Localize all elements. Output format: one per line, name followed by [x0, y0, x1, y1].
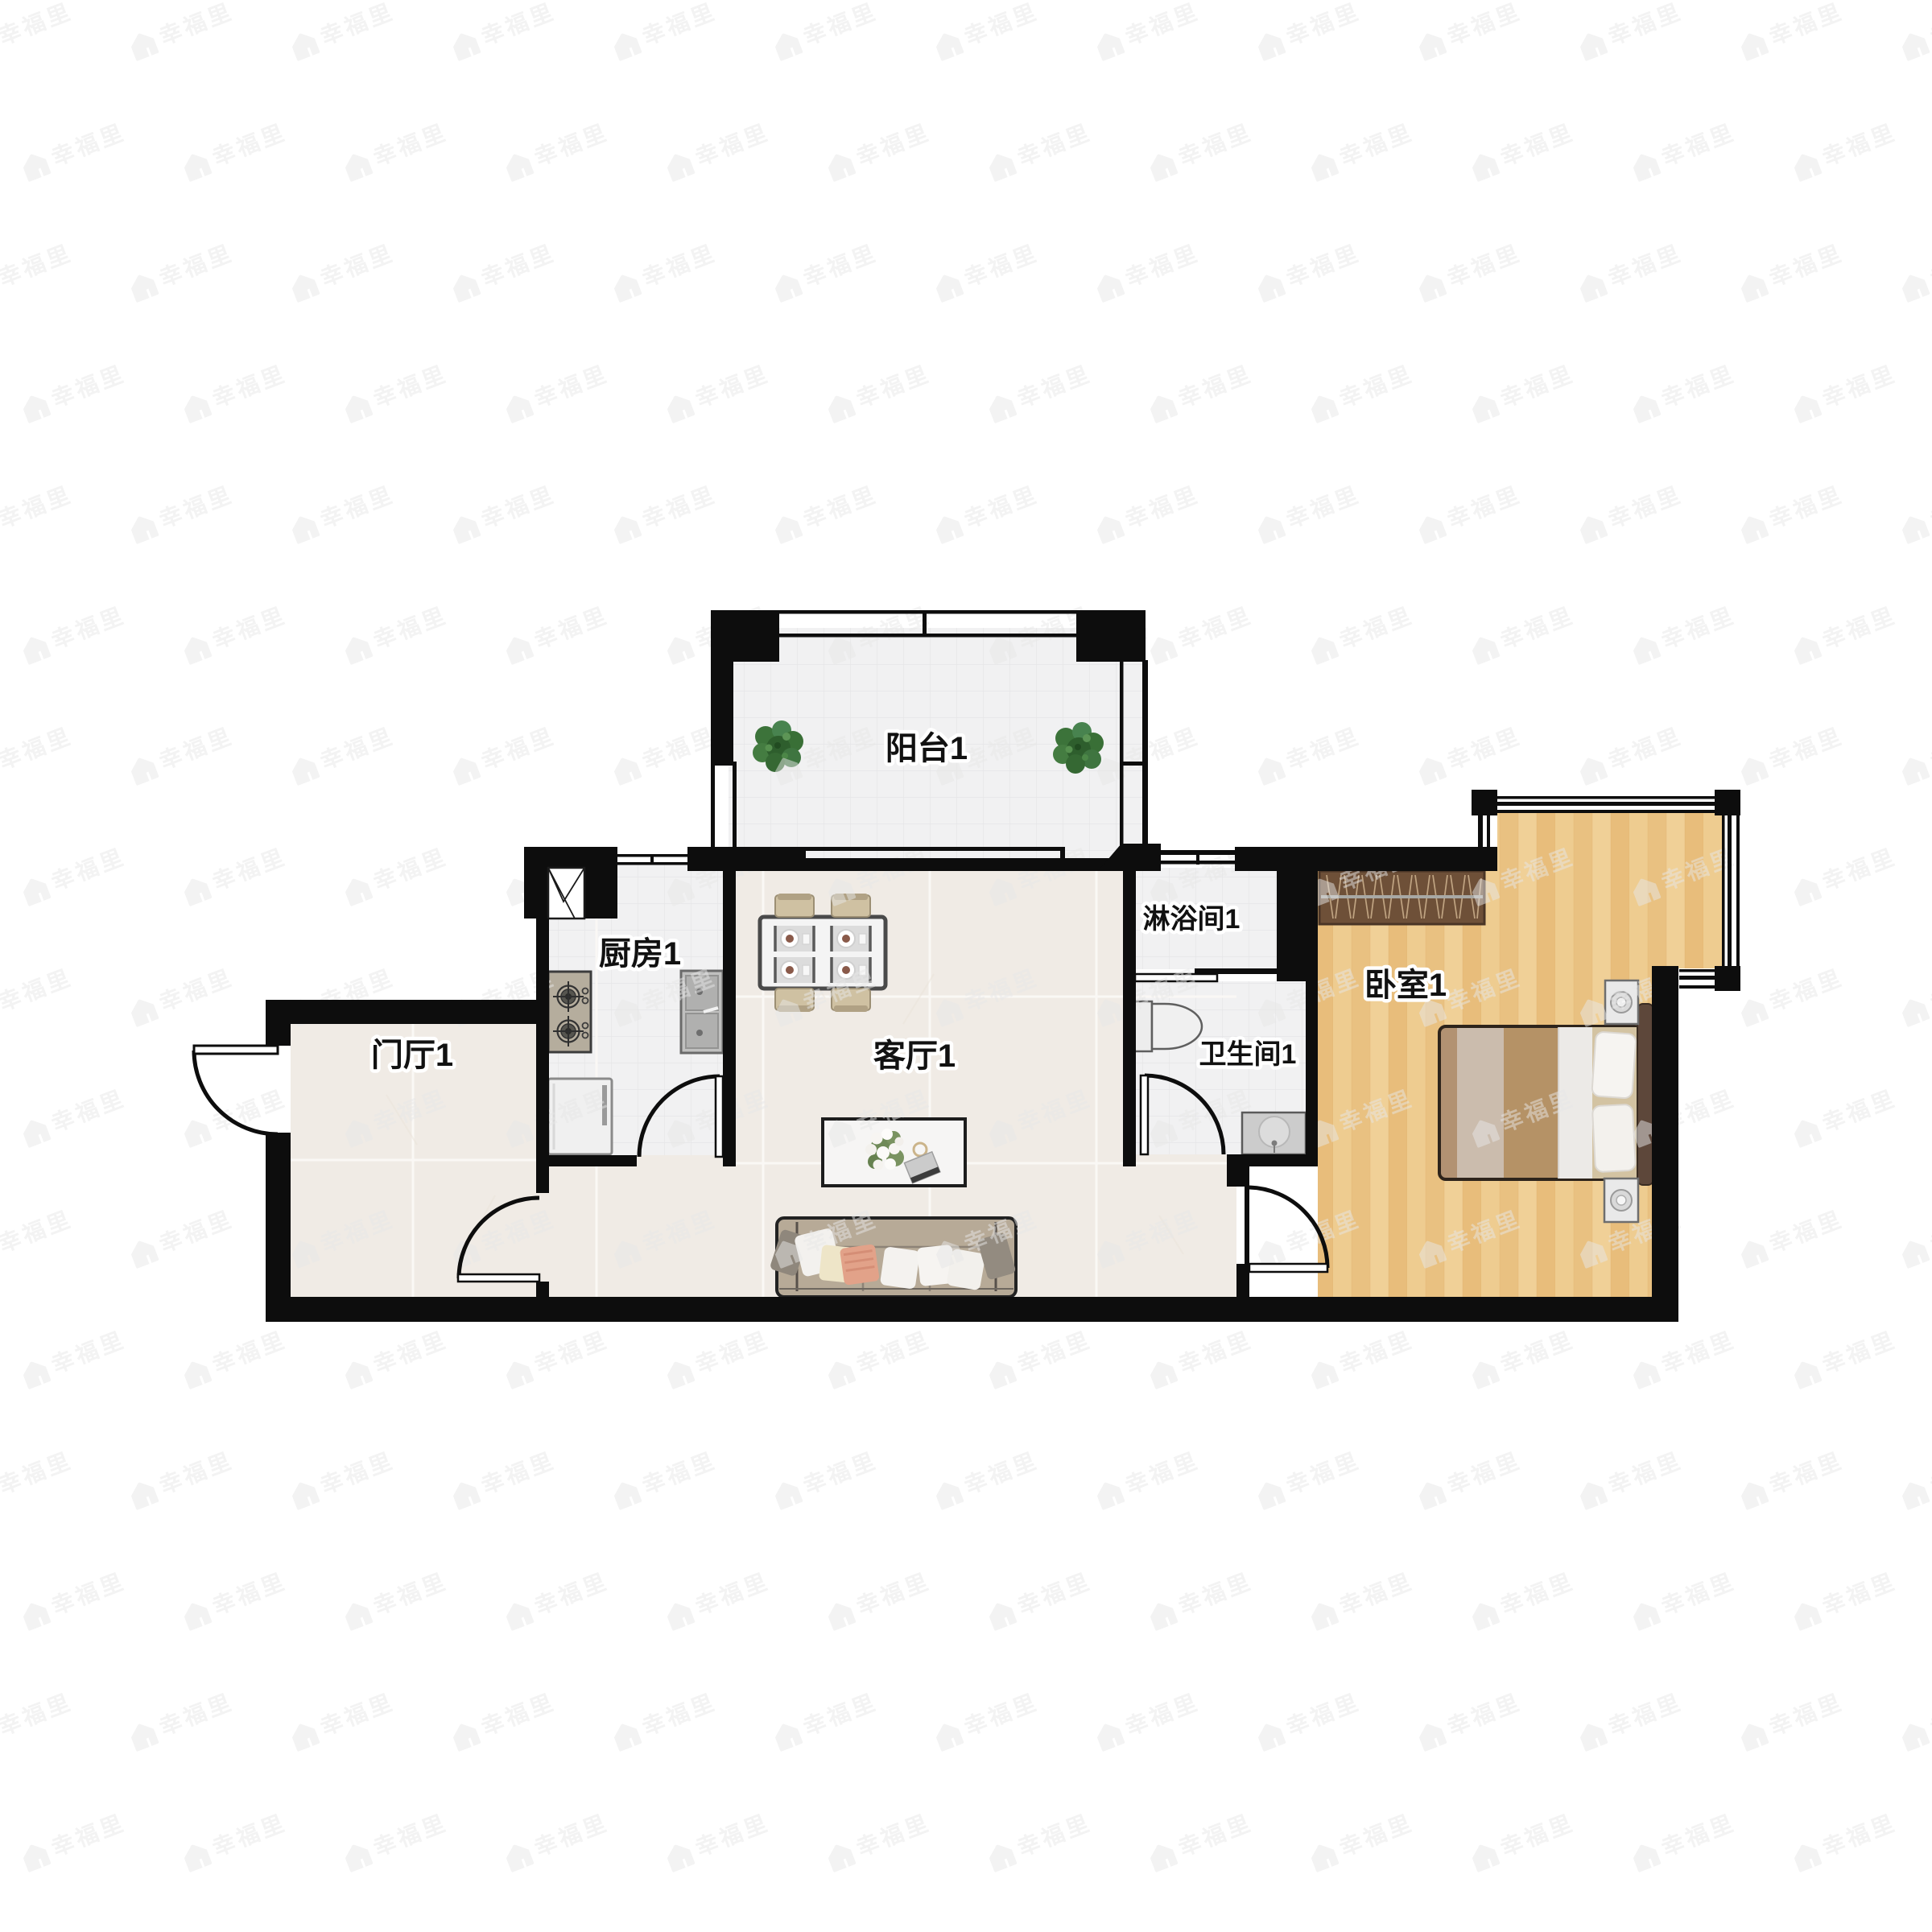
svg-text:阳台1: 阳台1: [885, 731, 968, 766]
svg-text:厨房1: 厨房1: [599, 936, 681, 972]
svg-text:卧室1: 卧室1: [1364, 968, 1447, 1003]
svg-text:门厅1: 门厅1: [371, 1038, 453, 1073]
svg-text:淋浴间1: 淋浴间1: [1143, 904, 1241, 935]
svg-text:客厅1: 客厅1: [873, 1038, 956, 1074]
svg-text:卫生间1: 卫生间1: [1199, 1039, 1297, 1070]
